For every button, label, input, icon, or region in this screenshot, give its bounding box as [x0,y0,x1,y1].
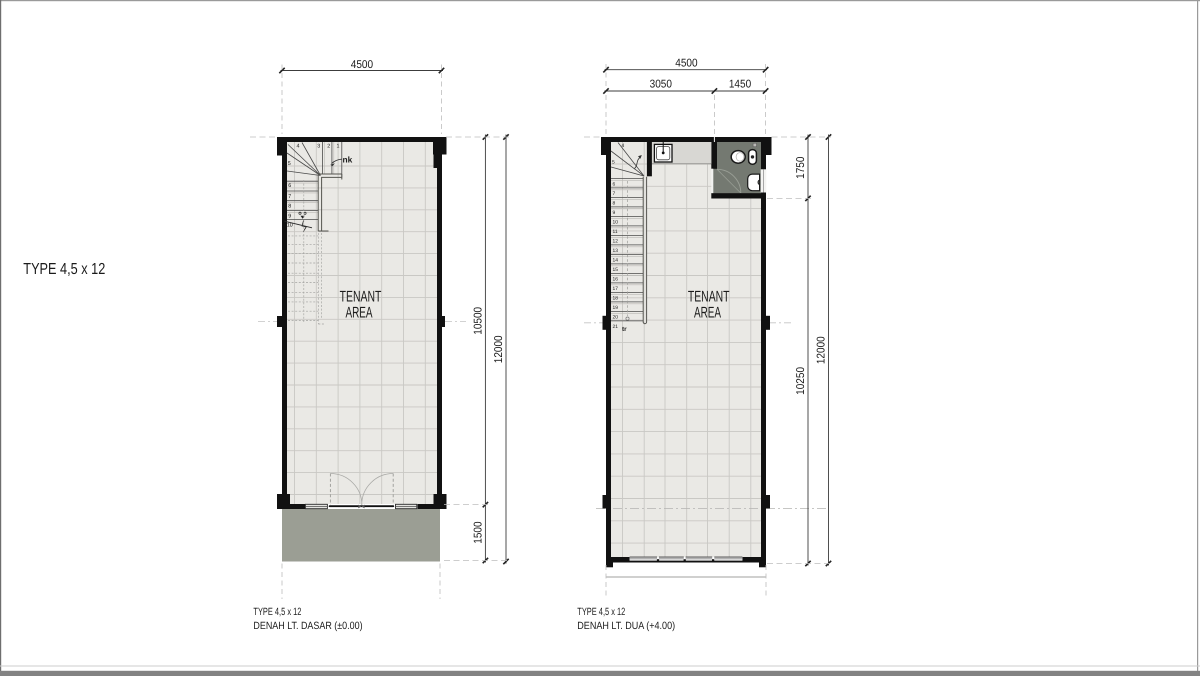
svg-text:6: 6 [613,181,616,187]
svg-text:12000: 12000 [493,335,505,363]
svg-text:4500: 4500 [351,59,373,71]
svg-text:DENAH LT. DUA (+4.00): DENAH LT. DUA (+4.00) [577,620,675,632]
svg-text:15: 15 [613,267,619,273]
svg-text:10500: 10500 [473,307,485,335]
svg-text:10: 10 [613,219,619,225]
svg-text:20: 20 [613,314,619,320]
svg-text:4500: 4500 [675,57,697,69]
svg-text:5: 5 [612,160,615,166]
svg-text:3: 3 [317,144,320,150]
svg-text:5: 5 [288,161,291,167]
svg-text:8: 8 [613,200,616,206]
svg-text:TYPE 4,5 x 12: TYPE 4,5 x 12 [23,261,105,278]
svg-text:11: 11 [613,229,618,235]
svg-text:1: 1 [337,144,340,150]
svg-text:14: 14 [613,257,619,263]
svg-text:1500: 1500 [473,521,485,543]
svg-text:TENANT: TENANT [688,289,730,306]
svg-text:12: 12 [613,238,619,244]
svg-text:10250: 10250 [795,367,807,395]
svg-text:18: 18 [613,295,619,301]
svg-text:DENAH LT. DASAR (±0.00): DENAH LT. DASAR (±0.00) [253,620,362,632]
svg-text:10: 10 [287,223,293,229]
svg-text:16: 16 [613,276,619,282]
svg-text:9: 9 [613,210,616,216]
svg-text:4: 4 [297,144,300,150]
svg-text:AREA: AREA [694,304,722,321]
svg-text:7: 7 [288,194,291,200]
svg-text:AREA: AREA [345,304,373,321]
svg-text:4: 4 [622,143,625,149]
svg-text:3050: 3050 [650,79,672,91]
svg-text:21: 21 [613,324,619,330]
svg-text:7: 7 [613,191,616,197]
svg-text:6: 6 [288,183,291,189]
svg-text:2: 2 [327,144,330,150]
svg-text:TYPE 4,5 x 12: TYPE 4,5 x 12 [253,606,301,618]
svg-text:1450: 1450 [729,79,751,91]
svg-text:nk: nk [343,154,353,164]
svg-text:TYPE 4,5 x 12: TYPE 4,5 x 12 [577,606,625,618]
svg-text:19: 19 [613,305,619,311]
svg-text:17: 17 [613,286,619,292]
svg-text:13: 13 [613,248,619,254]
svg-text:8: 8 [288,204,291,210]
svg-text:9: 9 [288,214,291,220]
svg-text:1750: 1750 [795,157,807,179]
svg-text:12000: 12000 [816,336,828,364]
svg-text:tr: tr [622,326,627,333]
svg-text:TENANT: TENANT [340,289,382,306]
